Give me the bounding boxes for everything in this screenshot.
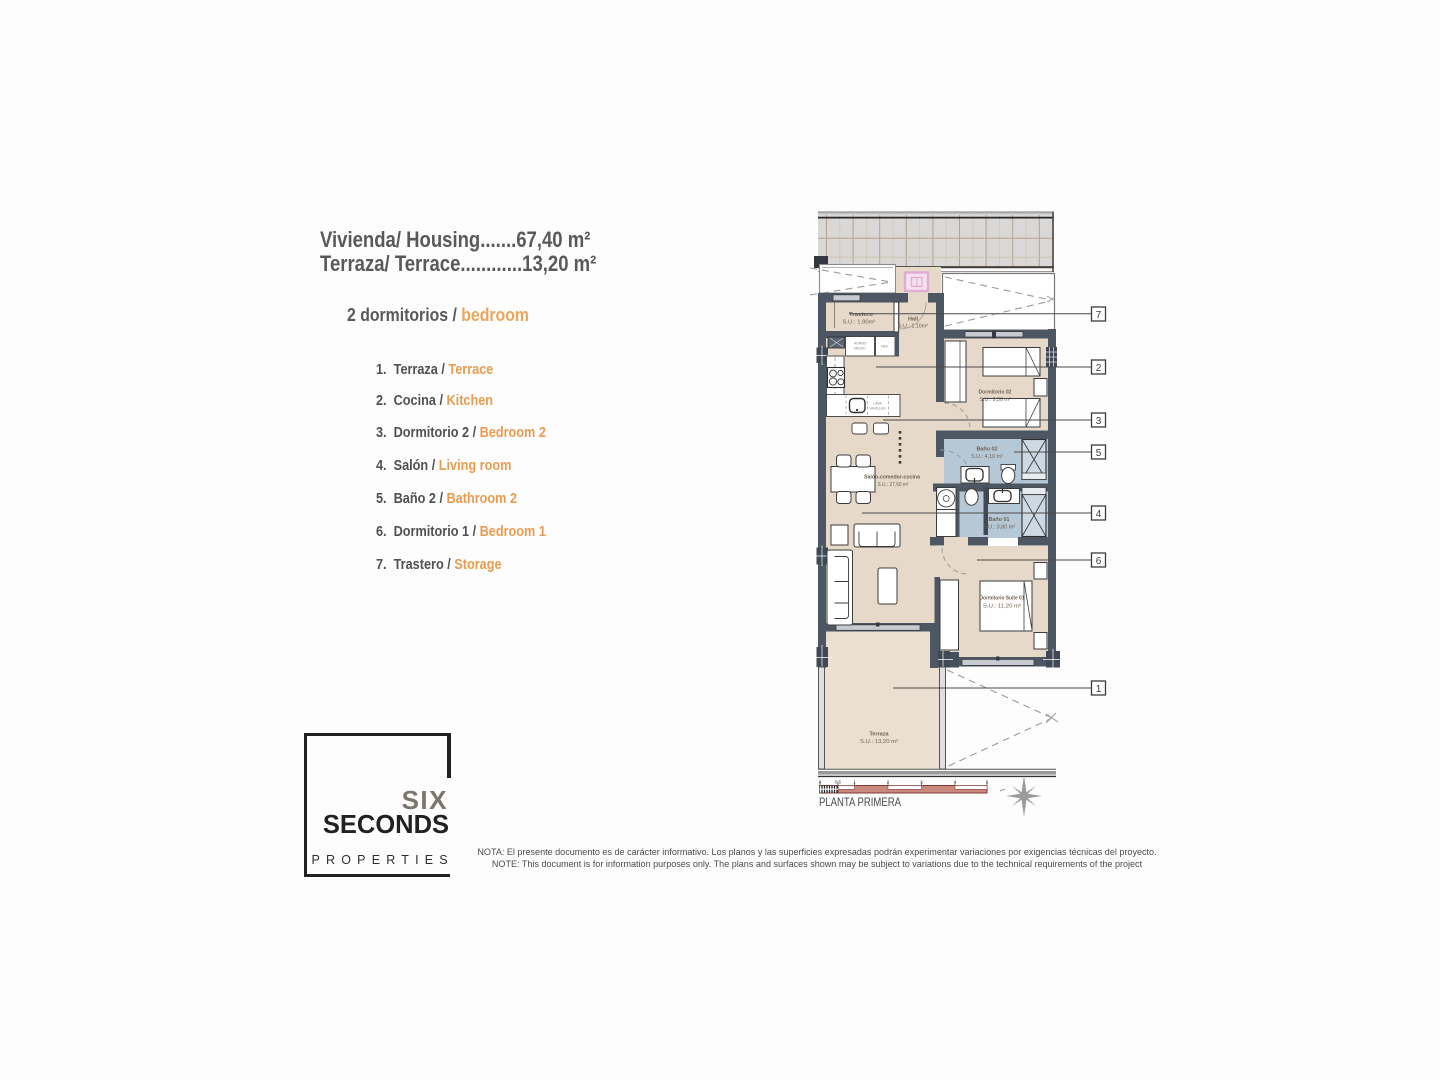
svg-text:0: 0 [819,780,822,785]
svg-text:S.U.: 1,90m²: S.U.: 1,90m² [843,320,876,326]
svg-text:Salón-comedor-cocina: Salón-comedor-cocina [864,475,921,481]
svg-text:1: 1 [1096,684,1102,695]
svg-text:Dormitorio Suite 01: Dormitorio Suite 01 [980,596,1025,602]
svg-text:5: 5 [1096,448,1102,459]
svg-text:PLANTA PRIMERA: PLANTA PRIMERA [819,797,901,809]
svg-text:3: 3 [920,780,923,785]
svg-text:S.U.: 9,30 m²: S.U.: 9,30 m² [980,397,1011,403]
svg-text:Hall: Hall [908,317,918,323]
svg-text:S.U.: 3,80 m²: S.U.: 3,80 m² [983,525,1015,531]
svg-text:S.U.: 27,60 m²: S.U.: 27,60 m² [878,482,909,488]
svg-text:S.U.: 13,20 m²: S.U.: 13,20 m² [860,739,898,745]
svg-text:7: 7 [1096,310,1102,321]
svg-text:Dormitorio 02: Dormitorio 02 [979,390,1012,396]
svg-text:5: 5 [986,780,989,785]
svg-text:NEV.: NEV. [881,345,889,349]
svg-text:S.U.: 4,10 m²: S.U.: 4,10 m² [971,454,1003,460]
svg-text:Trastero: Trastero [849,312,874,318]
svg-text:S.U.: 1,10m²: S.U.: 1,10m² [898,324,928,330]
svg-text:Baño 01: Baño 01 [989,517,1010,523]
svg-text:S.U.: 11,20 m²: S.U.: 11,20 m² [983,604,1021,610]
svg-text:4: 4 [954,780,957,785]
svg-text:4: 4 [1096,509,1102,520]
svg-text:2: 2 [1096,363,1102,374]
svg-text:3: 3 [1096,416,1102,427]
svg-text:HORNO: HORNO [854,342,867,346]
svg-text:LAVA: LAVA [873,402,882,406]
svg-text:Terraza: Terraza [870,732,890,738]
svg-text:2: 2 [887,780,890,785]
svg-text:VAJILLAS: VAJILLAS [869,407,886,411]
svg-text:1: 1 [853,780,856,785]
svg-text:MICRO: MICRO [854,347,866,351]
svg-text:6: 6 [1096,556,1102,567]
svg-text:Baño 02: Baño 02 [977,447,998,453]
svg-text:0,5: 0,5 [835,780,842,785]
